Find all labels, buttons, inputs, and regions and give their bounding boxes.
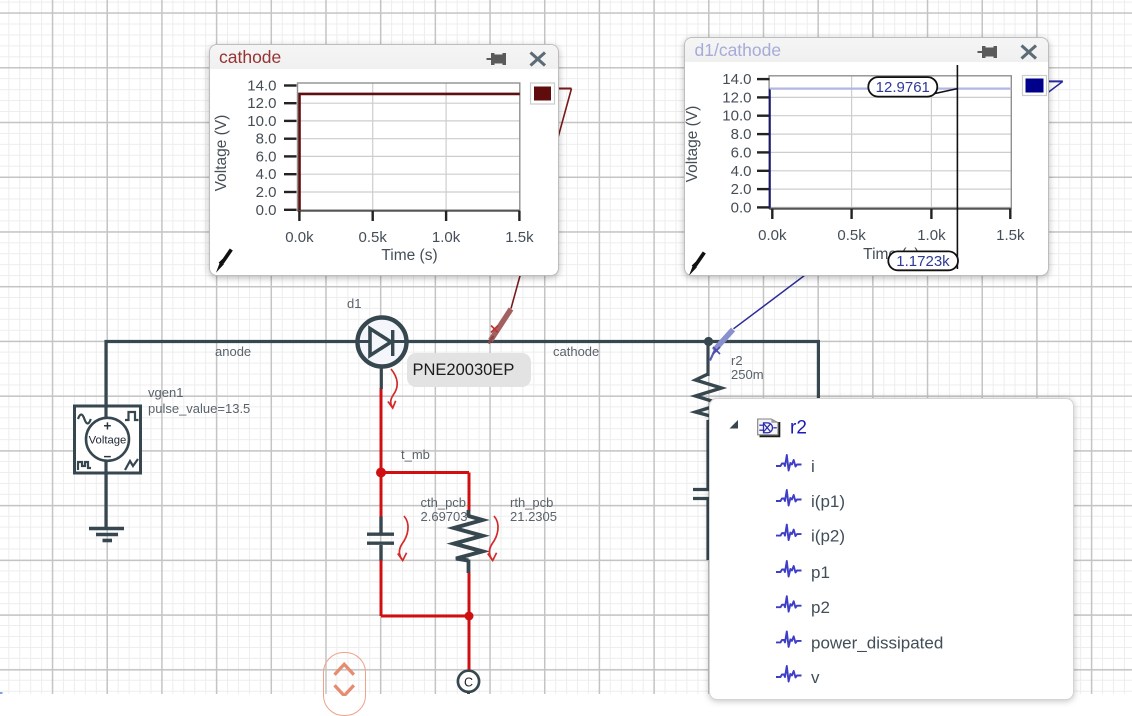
svg-text:21.2305: 21.2305 xyxy=(510,509,557,524)
svg-text:0.0k: 0.0k xyxy=(285,229,314,246)
svg-text:rth_pcb: rth_pcb xyxy=(510,495,553,510)
svg-text:cth_pcb: cth_pcb xyxy=(421,495,467,510)
svg-text:0.0k: 0.0k xyxy=(758,227,787,244)
svg-text:+: + xyxy=(104,419,112,434)
svg-text:r2: r2 xyxy=(790,417,807,438)
svg-text:i(p1): i(p1) xyxy=(811,492,845,511)
svg-text:i: i xyxy=(811,457,815,476)
svg-text:2.69703: 2.69703 xyxy=(421,509,468,524)
svg-text:10.0: 10.0 xyxy=(247,113,276,130)
svg-text:12.9761: 12.9761 xyxy=(876,79,930,96)
svg-text:i(p2): i(p2) xyxy=(811,526,845,545)
svg-text:12.0: 12.0 xyxy=(247,95,276,112)
svg-text:1.0k: 1.0k xyxy=(917,227,946,244)
svg-text:4.0: 4.0 xyxy=(255,166,276,183)
svg-text:2.0: 2.0 xyxy=(255,184,276,201)
svg-text:Voltage: Voltage xyxy=(89,435,127,447)
svg-text:14.0: 14.0 xyxy=(722,71,751,88)
svg-text:Voltage (V): Voltage (V) xyxy=(213,115,230,192)
svg-text:r2: r2 xyxy=(731,353,743,368)
svg-text:Voltage (V): Voltage (V) xyxy=(685,106,701,183)
svg-text:2.0: 2.0 xyxy=(731,181,752,198)
svg-text:8.0: 8.0 xyxy=(731,126,752,143)
svg-text:6.0: 6.0 xyxy=(255,148,276,165)
svg-text:8.0: 8.0 xyxy=(255,131,276,148)
svg-text:1.5k: 1.5k xyxy=(996,227,1025,244)
svg-text:0.5k: 0.5k xyxy=(837,227,866,244)
svg-text:p2: p2 xyxy=(811,598,830,617)
svg-text:t_mb: t_mb xyxy=(401,447,430,462)
svg-text:−: − xyxy=(104,449,112,464)
svg-text:anode: anode xyxy=(215,344,251,359)
svg-text:power_dissipated: power_dissipated xyxy=(811,633,943,652)
svg-text:6.0: 6.0 xyxy=(731,144,752,161)
svg-text:pulse_value=13.5: pulse_value=13.5 xyxy=(148,401,250,416)
svg-text:250m: 250m xyxy=(731,367,764,382)
svg-text:1.5k: 1.5k xyxy=(505,229,534,246)
svg-text:0.0: 0.0 xyxy=(731,199,752,216)
svg-text:12.0: 12.0 xyxy=(722,89,751,106)
svg-text:d1: d1 xyxy=(347,296,361,311)
svg-text:Time (s): Time (s) xyxy=(381,247,437,264)
svg-text:10.0: 10.0 xyxy=(722,108,751,125)
svg-text:v: v xyxy=(811,668,820,687)
svg-text:1.0k: 1.0k xyxy=(431,229,460,246)
svg-text:1.1723k: 1.1723k xyxy=(896,253,950,270)
svg-text:0.5k: 0.5k xyxy=(358,229,387,246)
svg-text:14.0: 14.0 xyxy=(247,78,276,95)
svg-text:p1: p1 xyxy=(811,563,830,582)
svg-text:vgen1: vgen1 xyxy=(148,385,183,400)
svg-text:cathode: cathode xyxy=(553,344,599,359)
svg-text:C: C xyxy=(464,676,473,690)
svg-text:4.0: 4.0 xyxy=(731,163,752,180)
svg-text:0.0: 0.0 xyxy=(255,202,276,219)
